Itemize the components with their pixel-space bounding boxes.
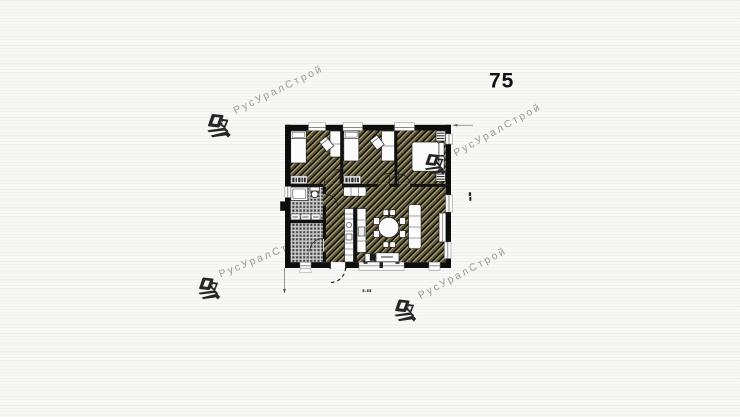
svg-text:РусУралСтрой: РусУралСтрой: [452, 102, 544, 159]
svg-text:РусУралСтрой: РусУралСтрой: [232, 64, 326, 117]
svg-text:75: 75: [489, 70, 514, 93]
